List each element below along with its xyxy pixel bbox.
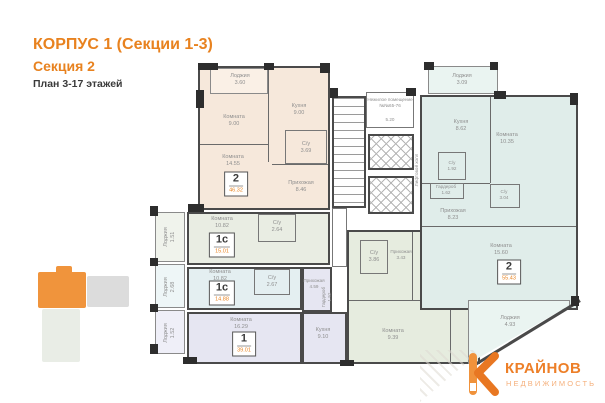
wall-segment	[150, 304, 158, 312]
floors-caption: План 3-17 этажей	[33, 78, 123, 90]
room-label-kitchen: Кухня9.10	[316, 327, 331, 341]
room-label-bathroom: С/у3.69	[301, 141, 312, 155]
wall-segment	[150, 206, 158, 216]
room-label-hallway: Прихожая8.46	[288, 180, 314, 194]
minimap-section-3[interactable]	[87, 276, 129, 307]
room-label-wardrobe: Гардероб1.62	[436, 184, 456, 196]
wall-segment	[571, 296, 579, 306]
room-label-hallway: Прихожая8.23	[440, 208, 466, 222]
room-label-loggia: Лоджия3.60	[230, 73, 250, 87]
staircase	[332, 96, 366, 208]
room-label-kitchen: Кухня9.00	[292, 103, 307, 117]
section-subtitle: Секция 2	[33, 58, 95, 74]
apartment-badge[interactable]: 139.01	[232, 332, 256, 357]
room-label-loggia: Лоджия1.52	[163, 323, 177, 343]
room-label-room: Комната9.00	[223, 114, 245, 128]
brand-k-house-icon	[463, 352, 503, 396]
room-label-bathroom: С/у3.04	[500, 189, 509, 201]
non-residential-label: Нежилое помещение №№65-76	[367, 97, 412, 109]
wall-segment	[406, 88, 416, 96]
page-title: КОРПУС 1 (Секции 1-3)	[33, 36, 213, 54]
wall-segment	[264, 63, 274, 70]
wall-segment	[188, 204, 204, 212]
wall-segment	[320, 63, 330, 73]
wall-segment	[570, 93, 578, 105]
wall-segment	[196, 90, 204, 108]
apartment-badge[interactable]: 255.43	[497, 260, 521, 285]
wall-segment	[183, 357, 197, 364]
wall-line	[422, 226, 576, 227]
floor-plan-page: КОРПУС 1 (Секции 1-3) Секция 2 План 3-17…	[0, 0, 605, 403]
apartment-badge[interactable]: 1с14.88	[209, 281, 235, 306]
room-label-room: Комната15.60	[490, 243, 512, 257]
room-label-room: Комната10.82	[211, 216, 233, 230]
room-label-bathroom: С/у2.67	[267, 275, 278, 289]
elevator-shaft	[368, 134, 414, 170]
wall-line	[268, 68, 269, 162]
brand-name: КРАЙНОВ	[505, 360, 581, 377]
wall-segment	[330, 88, 338, 98]
room-label-loggia: Лоджия3.09	[452, 73, 472, 87]
wall-segment	[198, 63, 218, 70]
room-label-bathroom: С/у2.64	[272, 220, 283, 234]
room-label-bathroom: С/у1.92	[448, 160, 457, 172]
wall-segment	[340, 360, 354, 366]
wall-segment	[150, 344, 158, 354]
minimap-section-2[interactable]	[38, 272, 86, 308]
elevator-shaft	[368, 176, 414, 214]
room-label-kitchen: Кухня8.62	[454, 119, 469, 133]
wall-line	[412, 232, 413, 300]
room-label-bathroom: С/у3.86	[369, 250, 380, 264]
wall-segment	[494, 91, 506, 99]
wall-segment	[490, 62, 498, 70]
wall-line	[200, 144, 268, 145]
room-label-room: Комната16.29	[230, 317, 252, 331]
non-residential-area: 5.20	[386, 117, 395, 123]
room-label-loggia: Лоджия2.68	[163, 277, 177, 297]
room-label-hallway: Прихожая3.43	[390, 249, 411, 261]
wall-line	[272, 164, 328, 165]
room-label-room: Комната10.35	[496, 132, 518, 146]
room-label-wardrobe: Гардероб1.52	[321, 287, 333, 307]
elevator-hall-label: Лифтовой холл	[414, 154, 420, 187]
room-label-room: Комната14.55	[222, 154, 244, 168]
room-label-loggia: Лоджия4.93	[500, 315, 520, 329]
apartment-badge[interactable]: 246.32	[224, 172, 248, 197]
wall-segment	[424, 62, 434, 70]
room-label-loggia: Лоджия1.51	[163, 227, 177, 247]
minimap-section-1[interactable]	[42, 309, 80, 362]
wall-segment	[150, 258, 158, 266]
wall-line	[490, 97, 491, 183]
apartment-badge[interactable]: 1с15.01	[209, 233, 235, 258]
brand-tagline: НЕДВИЖИМОСТЬ	[506, 379, 596, 388]
corridor	[332, 208, 347, 267]
room-label-room: Комната9.39	[382, 328, 404, 342]
